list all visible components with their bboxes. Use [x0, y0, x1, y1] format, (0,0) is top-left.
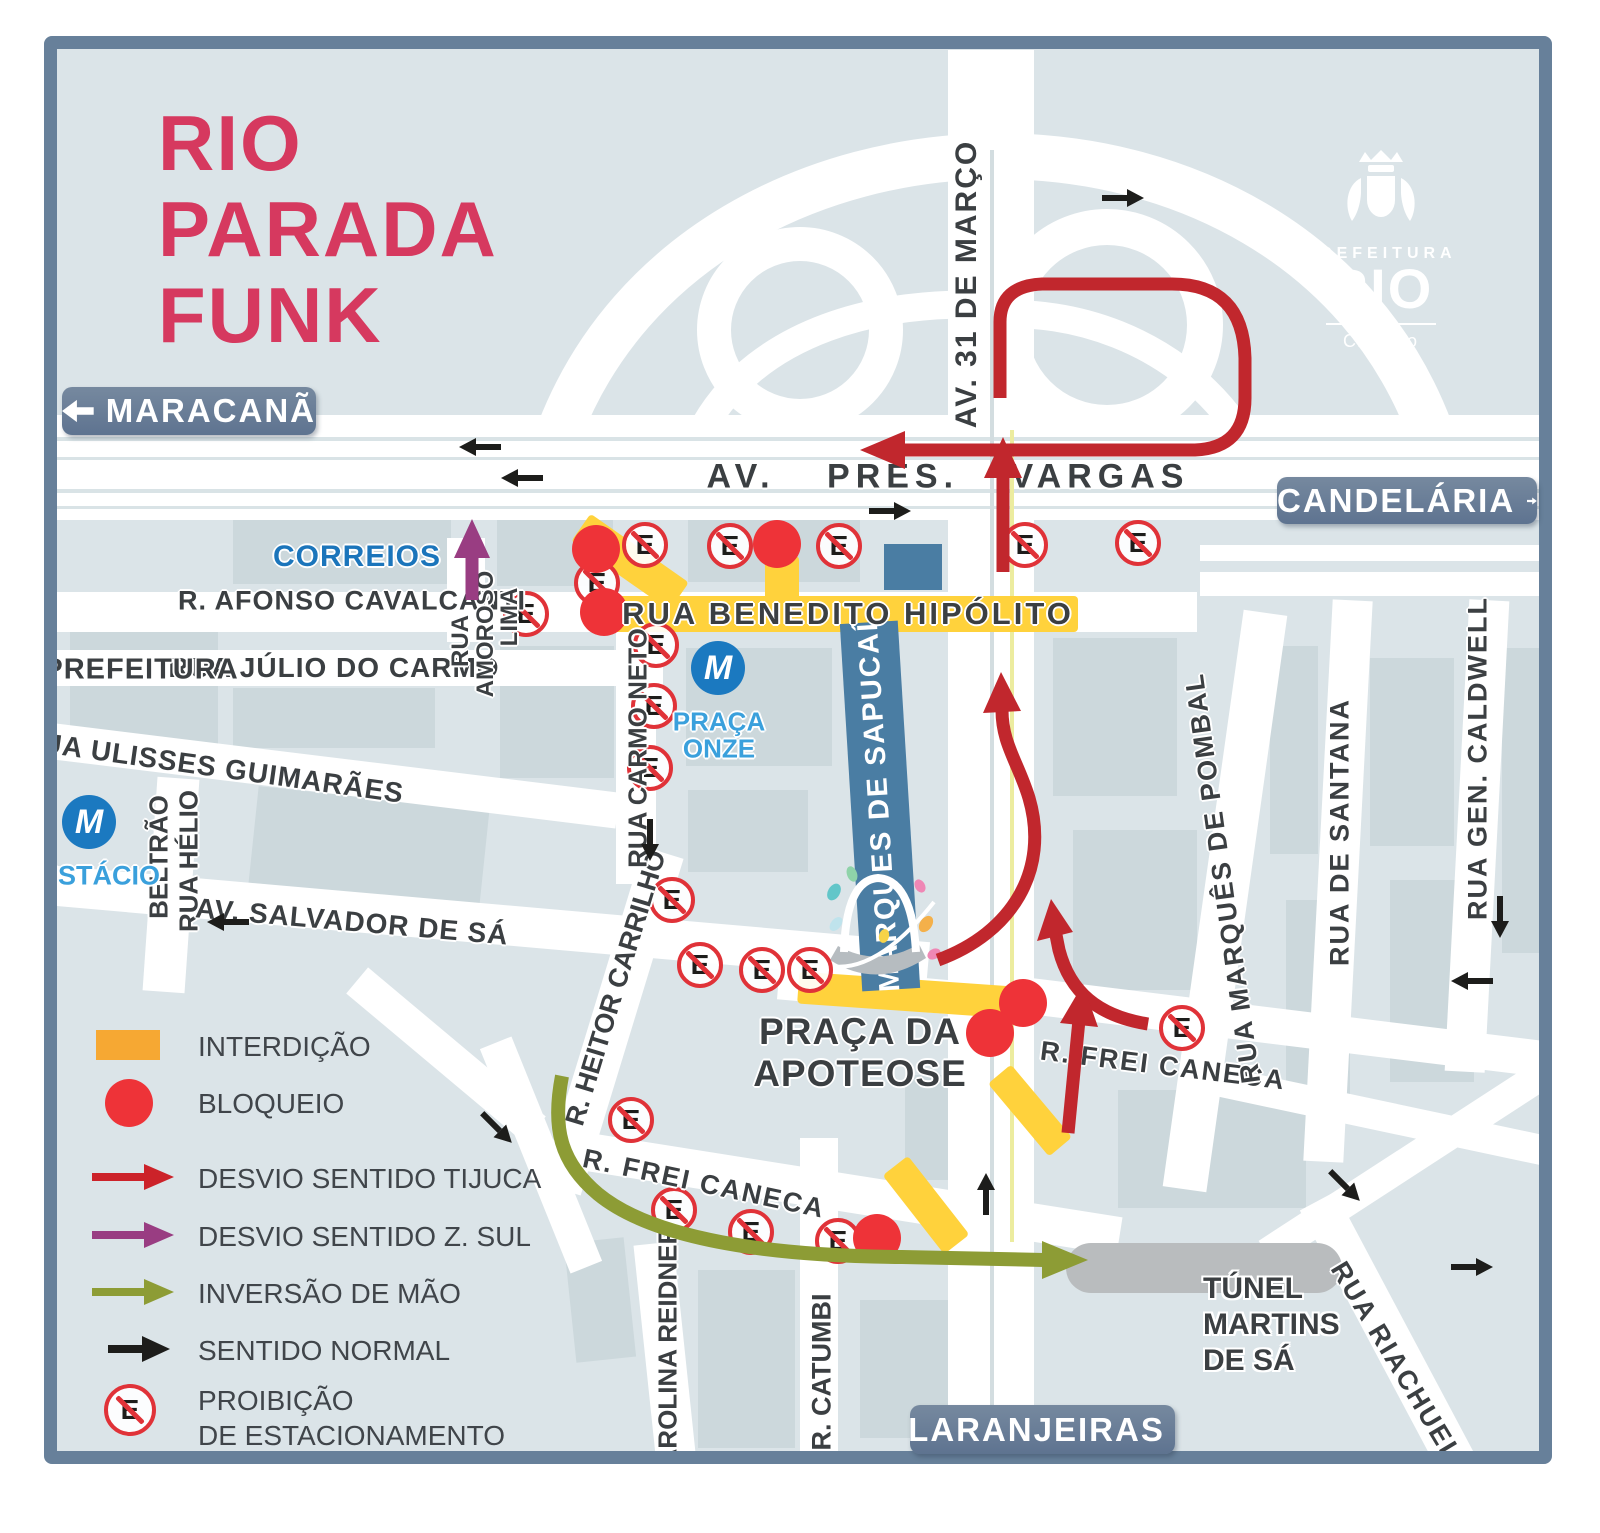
sign-maracana-label: MARACANÃ — [106, 392, 316, 430]
street-label-31-marco: AV. 31 DE MARÇO — [950, 140, 984, 428]
blockade-dot — [572, 525, 620, 573]
no-parking-icon: E — [787, 947, 833, 993]
blockade-dot — [580, 588, 628, 636]
street-label-benedito: RUA BENEDITO HIPÓLITO — [622, 596, 1074, 632]
blockade-dot — [753, 520, 801, 568]
legend-no-parking-icon: E — [104, 1384, 156, 1436]
street-label-riachuelo: RUA RIACHUELO — [1324, 1256, 1480, 1464]
place-label-estacio: ESTÁCIO — [44, 861, 160, 892]
blockade-dot — [966, 1009, 1014, 1057]
sentido-normal-arrow-icon — [501, 469, 543, 487]
metro-icon-praca-onze: M — [691, 641, 745, 695]
legend-inversao-arrow — [92, 1277, 174, 1307]
legend-interdicao-label: INTERDIÇÃO — [198, 1031, 371, 1063]
legend-desvio-zsul-arrow — [92, 1220, 174, 1250]
sambadrome-north-block — [884, 544, 942, 590]
no-parking-icon: E — [728, 1209, 774, 1255]
street-label-amoroso-1: RUA — [447, 615, 475, 667]
place-label-praca-onze-2: ONZE — [683, 734, 755, 765]
legend-proibicao-label-2: DE ESTACIONAMENTO — [198, 1420, 505, 1452]
sentido-normal-arrow-icon — [1102, 189, 1144, 207]
blockade-dot — [853, 1214, 901, 1262]
no-parking-icon: E — [622, 522, 668, 568]
sentido-normal-arrow-icon — [977, 1173, 995, 1215]
road — [1200, 572, 1552, 596]
sentido-normal-arrow-icon — [1451, 1258, 1493, 1276]
legend-sentido-normal-label: SENTIDO NORMAL — [198, 1335, 450, 1367]
no-parking-icon: E — [677, 942, 723, 988]
sign-laranjeiras-label: LARANJEIRAS — [908, 1411, 1165, 1449]
legend-desvio-tijuca-arrow — [92, 1162, 174, 1192]
arrow-left-icon — [62, 398, 94, 424]
no-parking-icon: E — [739, 947, 785, 993]
legend-proibicao-label-1: PROIBIÇÃO — [198, 1385, 354, 1417]
street-label-heitor: R. HEITOR CARRILHO — [559, 847, 672, 1130]
logo-org-text: CET-Rio — [1298, 331, 1463, 352]
city-block — [1073, 830, 1197, 990]
place-label-apoteose-1: PRAÇA DA — [759, 1011, 961, 1053]
map-area: MARQUES DE SAPUCAÍ M — [44, 36, 1552, 1464]
sentido-normal-arrow-icon — [641, 819, 659, 861]
legend-bloqueio-swatch — [105, 1079, 153, 1127]
street-label-carolina: CAROLINA REIDNER — [653, 1226, 684, 1464]
avenue-lane-stripe — [57, 437, 1543, 441]
city-block — [233, 688, 435, 748]
avenue-median-line — [990, 150, 994, 1452]
sign-laranjeiras: LARANJEIRAS — [910, 1405, 1175, 1454]
metro-letter: M — [704, 649, 732, 688]
sentido-normal-arrow-icon — [459, 438, 501, 456]
legend-interdicao-swatch — [96, 1030, 160, 1060]
legend-sentido-normal-arrow — [108, 1334, 170, 1364]
place-label-correios: CORREIOS — [273, 540, 441, 574]
no-parking-icon: E — [1159, 1005, 1205, 1051]
place-label-tunel-2: MARTINS — [1203, 1308, 1340, 1342]
no-parking-icon: E — [1115, 520, 1161, 566]
street-label-amoroso-3: LIMA — [496, 588, 524, 647]
metro-icon-estacio: M — [62, 795, 116, 849]
title-line-3: FUNK — [158, 272, 498, 358]
arrow-right-icon — [1527, 488, 1537, 514]
street-label-santana: RUA DE SANTANA — [1325, 698, 1356, 966]
city-block — [698, 1270, 795, 1448]
street-label-sapucai: MARQUES DE SAPUCAÍ — [852, 620, 908, 992]
metro-letter: M — [75, 803, 103, 842]
sign-candelaria: CANDELÁRIA — [1277, 477, 1537, 524]
sentido-normal-arrow-icon — [869, 502, 911, 520]
street-label-catumbi: R. CATUMBI — [807, 1294, 838, 1451]
title-line-1: RIO — [158, 100, 498, 186]
no-parking-icon: E — [707, 523, 753, 569]
city-crest-icon — [1339, 148, 1423, 236]
city-block — [1370, 658, 1454, 846]
city-block — [1053, 638, 1177, 796]
legend-desvio-zsul-label: DESVIO SENTIDO Z. SUL — [198, 1221, 531, 1253]
place-label-tunel-1: TÚNEL — [1203, 1272, 1303, 1306]
place-label-tunel-3: DE SÁ — [1203, 1344, 1295, 1378]
no-parking-icon: E — [816, 523, 862, 569]
street-label-helio-2: BELTRÃO — [144, 795, 175, 919]
legend-bloqueio-label: BLOQUEIO — [198, 1088, 344, 1120]
sign-candelaria-label: CANDELÁRIA — [1277, 482, 1515, 520]
traffic-map-page: MARQUES DE SAPUCAÍ M — [0, 0, 1600, 1533]
logo-rio-text: RIO — [1298, 263, 1463, 315]
no-parking-icon: E — [608, 1097, 654, 1143]
road — [1200, 545, 1552, 561]
page-title: RIO PARADA FUNK — [158, 100, 498, 358]
no-parking-icon: E — [1002, 522, 1048, 568]
legend-inversao-label: INVERSÃO DE MÃO — [198, 1278, 461, 1310]
place-label-prefeitura: PREFEITURA — [44, 654, 239, 687]
place-label-apoteose-2: APOTEOSE — [753, 1053, 967, 1095]
street-label-caldwell: RUA GEN. CALDWELL — [1463, 596, 1494, 920]
sentido-normal-arrow-icon — [1491, 896, 1509, 938]
street-label-vargas: AV. PRES. VARGAS — [707, 458, 1190, 497]
city-block — [688, 790, 808, 872]
sign-maracana: MARACANÃ — [62, 387, 316, 435]
sentido-normal-arrow-icon — [207, 913, 249, 931]
sentido-normal-arrow-icon — [1451, 972, 1493, 990]
prefeitura-rio-logo: PREFEITURA RIO CET-Rio — [1298, 148, 1463, 352]
logo-divider — [1326, 323, 1436, 325]
title-line-2: PARADA — [158, 186, 498, 272]
legend-desvio-tijuca-label: DESVIO SENTIDO TIJUCA — [198, 1163, 541, 1195]
